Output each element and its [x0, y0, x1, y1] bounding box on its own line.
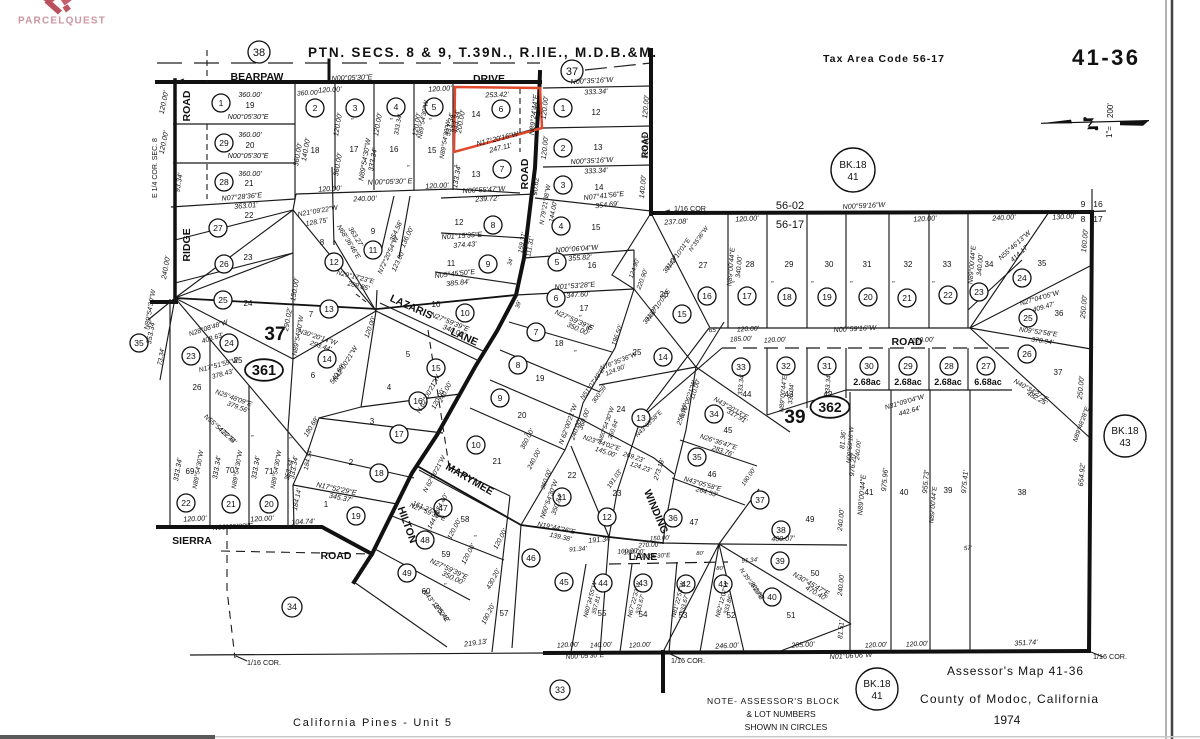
svg-text:ROAD: ROAD [519, 158, 531, 189]
svg-text:30: 30 [864, 361, 874, 371]
svg-text:18: 18 [374, 468, 384, 478]
svg-text:N 00°05'30" E: N 00°05'30" E [367, 176, 412, 187]
svg-text:237.08': 237.08' [663, 216, 688, 226]
svg-text:16: 16 [1093, 199, 1103, 209]
svg-text:24: 24 [617, 405, 626, 414]
svg-text:27: 27 [981, 361, 991, 371]
svg-text:19: 19 [246, 101, 255, 110]
svg-text:17: 17 [1093, 214, 1103, 224]
svg-text:3: 3 [561, 180, 566, 190]
svg-text:13: 13 [636, 413, 646, 423]
svg-text:6.68ac: 6.68ac [974, 377, 1002, 387]
svg-text:1/16 COR.: 1/16 COR. [671, 656, 705, 665]
svg-text:33: 33 [736, 362, 746, 372]
svg-text:ROAD: ROAD [321, 550, 352, 562]
svg-text:24: 24 [224, 338, 234, 348]
svg-text:33: 33 [555, 685, 565, 695]
svg-text:N00°05'30"E: N00°05'30"E [228, 151, 269, 160]
svg-text:California Pines - Unit 5: California Pines - Unit 5 [293, 717, 451, 729]
svg-text:BK.18: BK.18 [863, 679, 891, 690]
svg-text:BK.18: BK.18 [1111, 426, 1139, 437]
svg-text:4: 4 [387, 383, 392, 392]
svg-text:374.43': 374.43' [453, 239, 478, 250]
svg-text:12: 12 [602, 512, 612, 522]
svg-text:120.00': 120.00' [250, 513, 274, 523]
svg-text:360.00': 360.00' [238, 130, 262, 139]
svg-text:19: 19 [536, 374, 545, 383]
svg-text:& LOT NUMBERS: & LOT NUMBERS [746, 709, 816, 719]
svg-text:120.00': 120.00' [764, 336, 787, 344]
svg-text:40: 40 [767, 592, 777, 602]
svg-text:10: 10 [471, 440, 481, 450]
svg-text:22: 22 [181, 498, 191, 508]
svg-text:4: 4 [559, 221, 564, 231]
svg-text:9: 9 [486, 259, 491, 269]
svg-text:48: 48 [420, 535, 430, 545]
svg-text:27: 27 [699, 261, 708, 270]
svg-text:16: 16 [588, 261, 597, 270]
svg-text:3: 3 [353, 103, 358, 113]
svg-text:120.00': 120.00' [735, 213, 759, 223]
svg-text:30: 30 [825, 260, 834, 269]
svg-text:16: 16 [390, 145, 399, 154]
svg-text:25: 25 [1023, 313, 1033, 323]
svg-text:27: 27 [213, 223, 223, 233]
svg-text:36: 36 [668, 513, 678, 523]
svg-text:120.00': 120.00' [318, 183, 342, 193]
svg-text:80': 80' [696, 551, 704, 557]
svg-text:15: 15 [592, 223, 601, 232]
svg-text:45: 45 [559, 577, 569, 587]
svg-text:22: 22 [943, 290, 953, 300]
svg-text:32: 32 [904, 260, 913, 269]
svg-text:23: 23 [186, 351, 196, 361]
svg-text:51: 51 [787, 611, 796, 620]
svg-text:13: 13 [472, 170, 481, 179]
svg-text:13: 13 [594, 143, 603, 152]
svg-text:120.00': 120.00' [913, 213, 937, 223]
svg-text:120.00': 120.00' [629, 641, 652, 649]
svg-text:240.00': 240.00' [352, 194, 377, 204]
svg-text:36: 36 [1055, 309, 1064, 318]
svg-text:361: 361 [252, 363, 276, 379]
svg-text:39: 39 [784, 407, 805, 428]
svg-text:10: 10 [432, 300, 441, 309]
svg-text:E 1/4 COR. SEC. 8: E 1/4 COR. SEC. 8 [152, 138, 159, 198]
svg-text:N00°05'30"E: N00°05'30"E [228, 112, 269, 121]
svg-text:34: 34 [985, 260, 994, 269]
svg-text:19: 19 [351, 511, 361, 521]
svg-text:56-02: 56-02 [776, 200, 804, 212]
svg-text:65': 65' [586, 325, 595, 332]
svg-text:1/16 COR.: 1/16 COR. [1093, 652, 1127, 661]
svg-text:17: 17 [350, 145, 359, 154]
svg-text:9: 9 [498, 393, 503, 403]
svg-text:23: 23 [974, 287, 984, 297]
svg-text:200': 200' [1106, 103, 1115, 118]
svg-text:7: 7 [309, 310, 314, 319]
svg-text:347.60': 347.60' [566, 289, 591, 300]
svg-text:23: 23 [244, 253, 253, 262]
svg-text:140.00': 140.00' [590, 641, 613, 649]
svg-text:57: 57 [500, 609, 509, 618]
svg-text:8: 8 [320, 238, 325, 247]
svg-text:26: 26 [193, 383, 202, 392]
svg-text:46: 46 [526, 553, 536, 563]
svg-text:34: 34 [287, 602, 297, 612]
svg-text:RIDGE: RIDGE [181, 228, 193, 261]
svg-text:29: 29 [903, 361, 913, 371]
svg-text:333.34': 333.34' [584, 86, 608, 96]
svg-text:120.00': 120.00' [557, 641, 580, 649]
svg-text:35: 35 [134, 338, 144, 348]
svg-text:17: 17 [580, 304, 589, 313]
svg-text:355.82': 355.82' [568, 252, 593, 263]
svg-text:LANE: LANE [629, 551, 658, 563]
svg-text:31: 31 [863, 260, 872, 269]
svg-text:57': 57' [964, 545, 973, 552]
svg-text:7: 7 [500, 164, 505, 174]
svg-text:20: 20 [264, 499, 274, 509]
svg-text:46: 46 [708, 470, 717, 479]
svg-text:4: 4 [394, 102, 399, 112]
svg-text:32: 32 [781, 361, 791, 371]
svg-text:5: 5 [406, 350, 411, 359]
svg-text:44: 44 [598, 578, 608, 588]
svg-text:2: 2 [313, 103, 318, 113]
svg-text:1: 1 [561, 103, 566, 113]
svg-text:37: 37 [755, 495, 765, 505]
svg-text:360.00': 360.00' [238, 169, 262, 178]
svg-text:BK.18: BK.18 [839, 160, 867, 171]
svg-text:38: 38 [253, 47, 265, 59]
svg-text:5: 5 [555, 257, 560, 267]
svg-text:6: 6 [554, 293, 559, 303]
svg-text:351.74': 351.74' [1014, 637, 1038, 647]
svg-text:6: 6 [499, 104, 504, 114]
svg-text:9: 9 [371, 227, 376, 236]
svg-text:120.00': 120.00' [906, 640, 929, 648]
svg-text:10: 10 [460, 308, 470, 318]
svg-text:91.34': 91.34' [569, 545, 588, 553]
svg-text:15: 15 [428, 146, 437, 155]
svg-text:120.00': 120.00' [737, 325, 760, 333]
svg-text:26: 26 [219, 259, 229, 269]
svg-text:SIERRA: SIERRA [172, 535, 212, 547]
svg-text:1"=: 1"= [1105, 126, 1114, 138]
svg-text:19: 19 [822, 292, 832, 302]
svg-text:240.00': 240.00' [991, 212, 1016, 222]
svg-text:1: 1 [324, 500, 329, 509]
svg-text:24: 24 [1017, 273, 1027, 283]
svg-text:28: 28 [944, 361, 954, 371]
svg-text:362: 362 [818, 399, 842, 415]
svg-text:41: 41 [871, 691, 883, 702]
svg-text:1: 1 [219, 98, 224, 108]
svg-text:25: 25 [218, 295, 228, 305]
svg-text:18: 18 [311, 146, 320, 155]
svg-text:21: 21 [245, 179, 254, 188]
svg-text:21: 21 [226, 499, 236, 509]
svg-text:8: 8 [516, 360, 521, 370]
svg-text:6: 6 [311, 371, 316, 380]
svg-text:41: 41 [847, 172, 859, 183]
svg-text:33: 33 [943, 260, 952, 269]
svg-text:2.68ac: 2.68ac [894, 377, 922, 387]
svg-text:35: 35 [692, 452, 702, 462]
svg-text:2.68ac: 2.68ac [853, 377, 881, 387]
svg-text:Assessor's Map 41-36: Assessor's Map 41-36 [947, 664, 1083, 678]
svg-text:16: 16 [702, 291, 712, 301]
svg-text:8: 8 [1081, 214, 1086, 224]
svg-text:18: 18 [782, 292, 792, 302]
svg-text:246.00': 246.00' [714, 640, 739, 650]
svg-text:PARCELQUEST: PARCELQUEST [18, 16, 106, 27]
svg-text:21: 21 [493, 457, 502, 466]
svg-text:22: 22 [245, 211, 254, 220]
svg-text:239.72': 239.72' [474, 193, 499, 203]
svg-text:ROAD: ROAD [181, 90, 193, 121]
svg-text:SHOWN IN CIRCLES: SHOWN IN CIRCLES [745, 722, 828, 732]
svg-text:191.34': 191.34' [588, 534, 613, 545]
svg-text:150.00': 150.00' [650, 534, 671, 542]
svg-text:County of Modoc, California: County of Modoc, California [920, 692, 1098, 706]
svg-text:2: 2 [561, 143, 566, 153]
svg-text:3: 3 [370, 417, 375, 426]
svg-text:55: 55 [598, 609, 607, 618]
svg-text:NOTE- ASSESSOR'S BLOCK: NOTE- ASSESSOR'S BLOCK [707, 696, 839, 706]
svg-text:400.07': 400.07' [771, 534, 795, 544]
svg-text:1/16 COR.: 1/16 COR. [247, 658, 281, 667]
svg-text:13: 13 [324, 304, 334, 314]
svg-text:29: 29 [219, 138, 229, 148]
svg-text:BEARPAW: BEARPAW [231, 71, 284, 83]
svg-text:34: 34 [709, 409, 719, 419]
svg-text:2.68ac: 2.68ac [934, 377, 962, 387]
svg-text:ROAD: ROAD [892, 336, 923, 348]
svg-text:14: 14 [658, 352, 668, 362]
svg-text:11: 11 [369, 245, 378, 255]
svg-text:185.00': 185.00' [730, 335, 753, 343]
svg-text:37: 37 [264, 324, 285, 345]
svg-text:120.00': 120.00' [425, 180, 449, 190]
svg-text:120.00': 120.00' [428, 83, 452, 93]
svg-text:20: 20 [863, 292, 873, 302]
svg-text:15: 15 [677, 309, 687, 319]
svg-text:20: 20 [518, 411, 527, 420]
svg-text:120.00': 120.00' [318, 84, 342, 94]
svg-text:37: 37 [1054, 368, 1063, 377]
svg-text:38: 38 [1018, 488, 1027, 497]
svg-text:205.00': 205.00' [790, 639, 815, 649]
svg-text:26: 26 [1022, 349, 1032, 359]
svg-text:12: 12 [455, 218, 464, 227]
svg-text:5: 5 [432, 102, 437, 112]
svg-text:120.00': 120.00' [865, 641, 888, 649]
svg-text:24: 24 [244, 299, 253, 308]
svg-text:28: 28 [746, 260, 755, 269]
svg-text:17: 17 [394, 429, 404, 439]
svg-text:360.00': 360.00' [238, 90, 262, 99]
svg-text:12: 12 [592, 108, 601, 117]
svg-text:20: 20 [246, 141, 255, 150]
svg-text:104.74': 104.74' [291, 516, 315, 526]
svg-text:80': 80' [716, 566, 724, 572]
svg-text:14: 14 [472, 110, 481, 119]
svg-text:8: 8 [491, 220, 496, 230]
svg-text:41-36: 41-36 [1072, 45, 1138, 70]
svg-text:59: 59 [442, 550, 451, 559]
svg-text:49: 49 [806, 515, 815, 524]
svg-text:39: 39 [944, 486, 953, 495]
svg-text:28: 28 [219, 177, 229, 187]
svg-text:1974: 1974 [994, 713, 1021, 727]
svg-text:22: 22 [568, 471, 577, 480]
svg-text:120.00': 120.00' [183, 513, 207, 523]
svg-text:35: 35 [1038, 259, 1047, 268]
svg-text:31: 31 [822, 361, 832, 371]
svg-text:2: 2 [349, 458, 354, 467]
svg-text:49: 49 [402, 568, 412, 578]
svg-text:18: 18 [555, 339, 564, 348]
svg-text:N00°05'30"E: N00°05'30"E [331, 72, 372, 82]
svg-text:Tax Area Code 56-17: Tax Area Code 56-17 [823, 53, 944, 65]
svg-text:7: 7 [534, 327, 539, 337]
svg-text:17: 17 [742, 291, 752, 301]
svg-text:21: 21 [902, 293, 912, 303]
svg-text:12: 12 [329, 257, 339, 267]
svg-text:45: 45 [724, 426, 733, 435]
svg-text:ROAD: ROAD [640, 131, 650, 158]
svg-text:43: 43 [1119, 438, 1131, 449]
svg-text:DRIVE: DRIVE [473, 73, 505, 85]
svg-text:39: 39 [775, 556, 785, 566]
svg-text:1/16 COR: 1/16 COR [674, 204, 706, 213]
svg-text:360.00': 360.00' [297, 89, 320, 97]
svg-text:23: 23 [613, 489, 622, 498]
svg-text:56-17: 56-17 [776, 219, 804, 231]
svg-text:15: 15 [431, 363, 441, 373]
svg-text:333.34': 333.34' [584, 165, 608, 175]
svg-text:14: 14 [322, 354, 332, 364]
svg-text:253.42': 253.42' [484, 90, 509, 100]
svg-text:47: 47 [690, 518, 699, 527]
svg-text:29: 29 [785, 260, 794, 269]
svg-text:11: 11 [447, 259, 456, 268]
svg-text:91.34': 91.34' [741, 556, 759, 564]
svg-text:65': 65' [709, 327, 719, 334]
svg-text:50: 50 [811, 569, 820, 578]
svg-text:130.00': 130.00' [1052, 211, 1076, 221]
svg-text:40: 40 [900, 488, 909, 497]
svg-text:9: 9 [1081, 199, 1086, 209]
